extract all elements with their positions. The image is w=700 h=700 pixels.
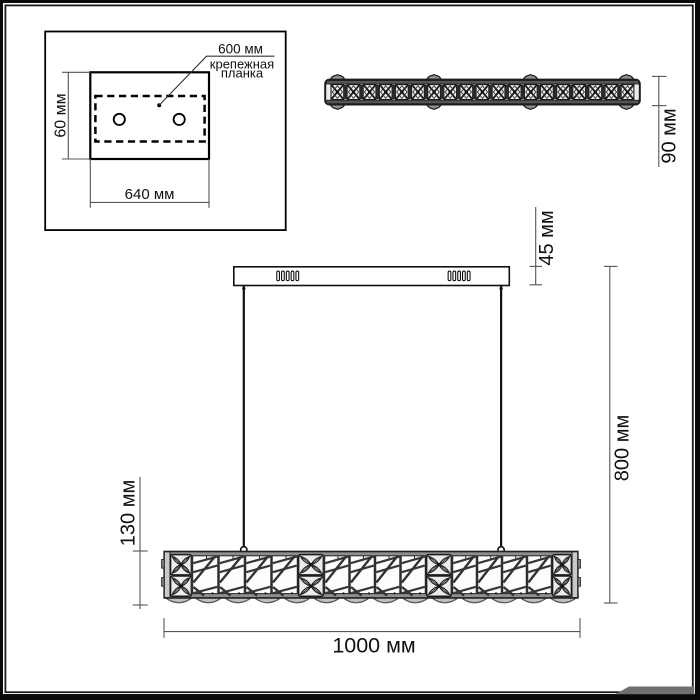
- svg-text:1000 мм: 1000 мм: [332, 634, 415, 658]
- svg-text:130 мм: 130 мм: [118, 480, 140, 546]
- svg-text:45 мм: 45 мм: [536, 210, 558, 265]
- svg-text:планка: планка: [221, 66, 264, 81]
- svg-text:800 мм: 800 мм: [612, 415, 634, 481]
- svg-text:60 мм: 60 мм: [53, 93, 70, 137]
- svg-text:640 мм: 640 мм: [125, 186, 175, 203]
- svg-text:90 мм: 90 мм: [659, 108, 681, 163]
- svg-text:600 мм: 600 мм: [218, 42, 263, 57]
